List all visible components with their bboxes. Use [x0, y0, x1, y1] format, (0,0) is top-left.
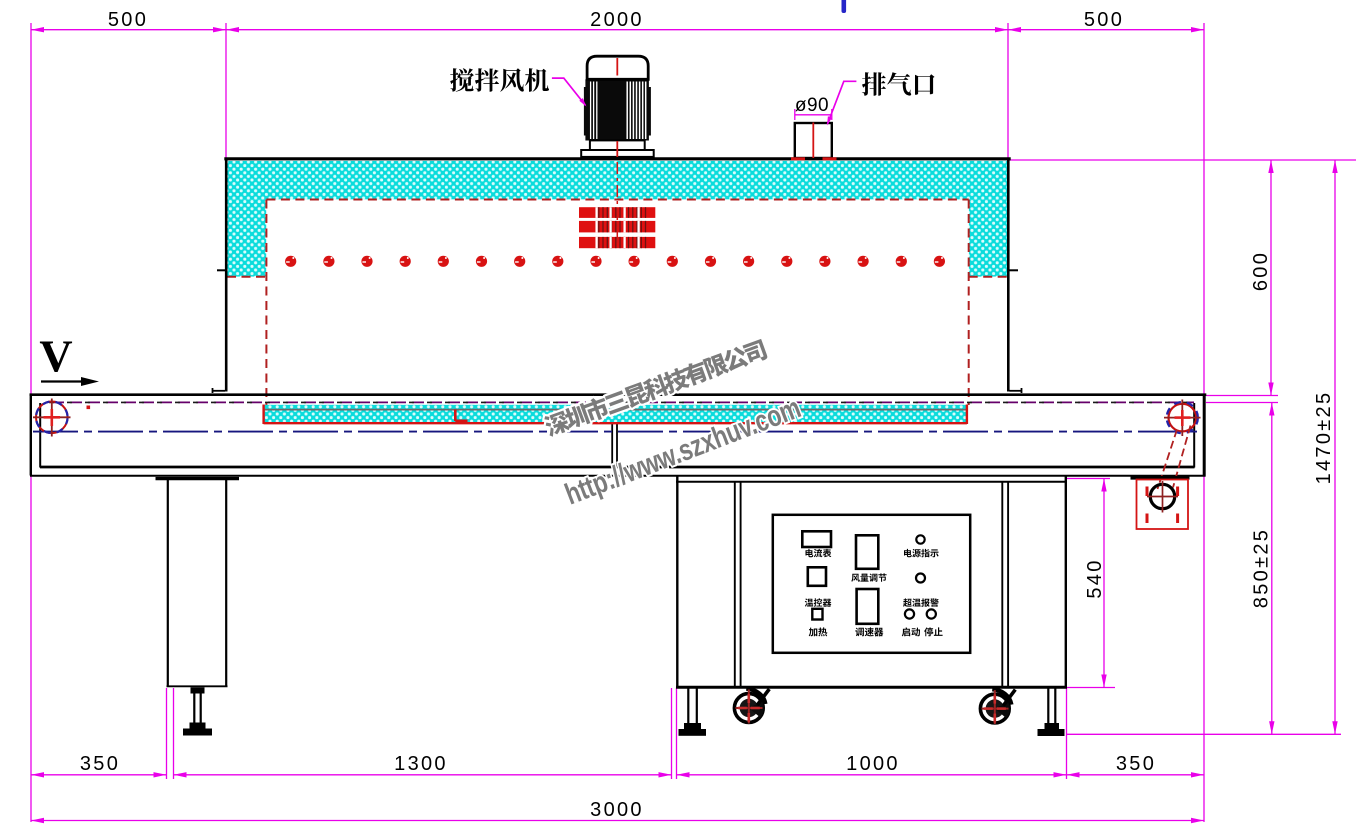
- svg-text:1000: 1000: [846, 753, 900, 775]
- svg-text:ø90: ø90: [795, 95, 829, 116]
- svg-text:350: 350: [80, 753, 120, 775]
- svg-text:540: 540: [1084, 558, 1106, 598]
- svg-text:V: V: [39, 331, 72, 382]
- svg-text:2000: 2000: [590, 9, 644, 31]
- svg-text:350: 350: [1116, 753, 1156, 775]
- svg-text:850±25: 850±25: [1251, 528, 1273, 608]
- svg-text:1300: 1300: [394, 753, 448, 775]
- svg-text:600: 600: [1250, 251, 1272, 291]
- svg-text:3000: 3000: [590, 799, 644, 821]
- svg-text:500: 500: [1084, 9, 1124, 31]
- svg-text:1470±25: 1470±25: [1313, 391, 1335, 485]
- svg-text:500: 500: [108, 9, 148, 31]
